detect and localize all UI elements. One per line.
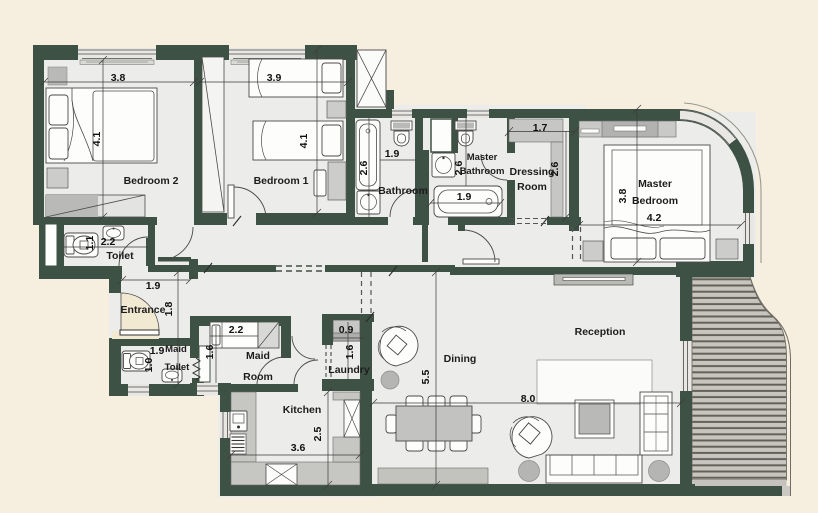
svg-text:1.6: 1.6 [204, 345, 216, 360]
svg-text:Bedroom 1: Bedroom 1 [254, 175, 309, 187]
svg-text:Master: Master [638, 178, 672, 190]
svg-text:Kitchen: Kitchen [283, 404, 322, 416]
svg-text:Entrance: Entrance [121, 304, 166, 316]
svg-text:Reception: Reception [575, 326, 626, 338]
svg-text:Room: Room [243, 371, 273, 383]
svg-text:4.1: 4.1 [91, 132, 103, 147]
svg-text:0.9: 0.9 [339, 324, 354, 336]
svg-text:Room: Room [517, 181, 547, 193]
svg-text:Dining: Dining [444, 353, 477, 365]
svg-text:1.9: 1.9 [385, 148, 400, 160]
svg-text:1.6: 1.6 [344, 345, 356, 360]
svg-text:4.1: 4.1 [298, 134, 310, 149]
svg-text:Laundry: Laundry [328, 364, 370, 376]
svg-text:2.2: 2.2 [229, 324, 244, 336]
svg-text:Toilet: Toilet [106, 250, 134, 262]
svg-text:Dressing: Dressing [510, 166, 555, 178]
svg-text:1.7: 1.7 [533, 122, 548, 134]
svg-text:3.8: 3.8 [111, 72, 126, 84]
svg-text:1.9: 1.9 [146, 280, 161, 292]
svg-text:8.0: 8.0 [521, 393, 536, 405]
svg-text:Bedroom 2: Bedroom 2 [124, 175, 179, 187]
svg-text:2.5: 2.5 [312, 427, 324, 442]
svg-text:2.6: 2.6 [358, 161, 370, 176]
svg-text:Maid: Maid [246, 350, 270, 362]
svg-text:4.2: 4.2 [647, 212, 662, 224]
svg-text:Toilet: Toilet [165, 362, 190, 373]
svg-text:3.9: 3.9 [267, 72, 282, 84]
svg-text:3.8: 3.8 [617, 189, 629, 204]
svg-text:2.2: 2.2 [101, 236, 116, 248]
svg-text:Bathroom: Bathroom [378, 185, 428, 197]
svg-text:Maid: Maid [165, 344, 187, 355]
svg-text:Master: Master [467, 152, 498, 163]
svg-text:1.0: 1.0 [143, 358, 155, 373]
svg-text:1.9: 1.9 [150, 345, 165, 357]
svg-text:5.5: 5.5 [420, 370, 432, 385]
svg-text:3.6: 3.6 [291, 442, 306, 454]
svg-text:1.1: 1.1 [84, 236, 96, 251]
svg-text:Bedroom: Bedroom [632, 195, 678, 207]
svg-text:1.9: 1.9 [457, 191, 472, 203]
svg-text:Bathroom: Bathroom [460, 166, 505, 177]
